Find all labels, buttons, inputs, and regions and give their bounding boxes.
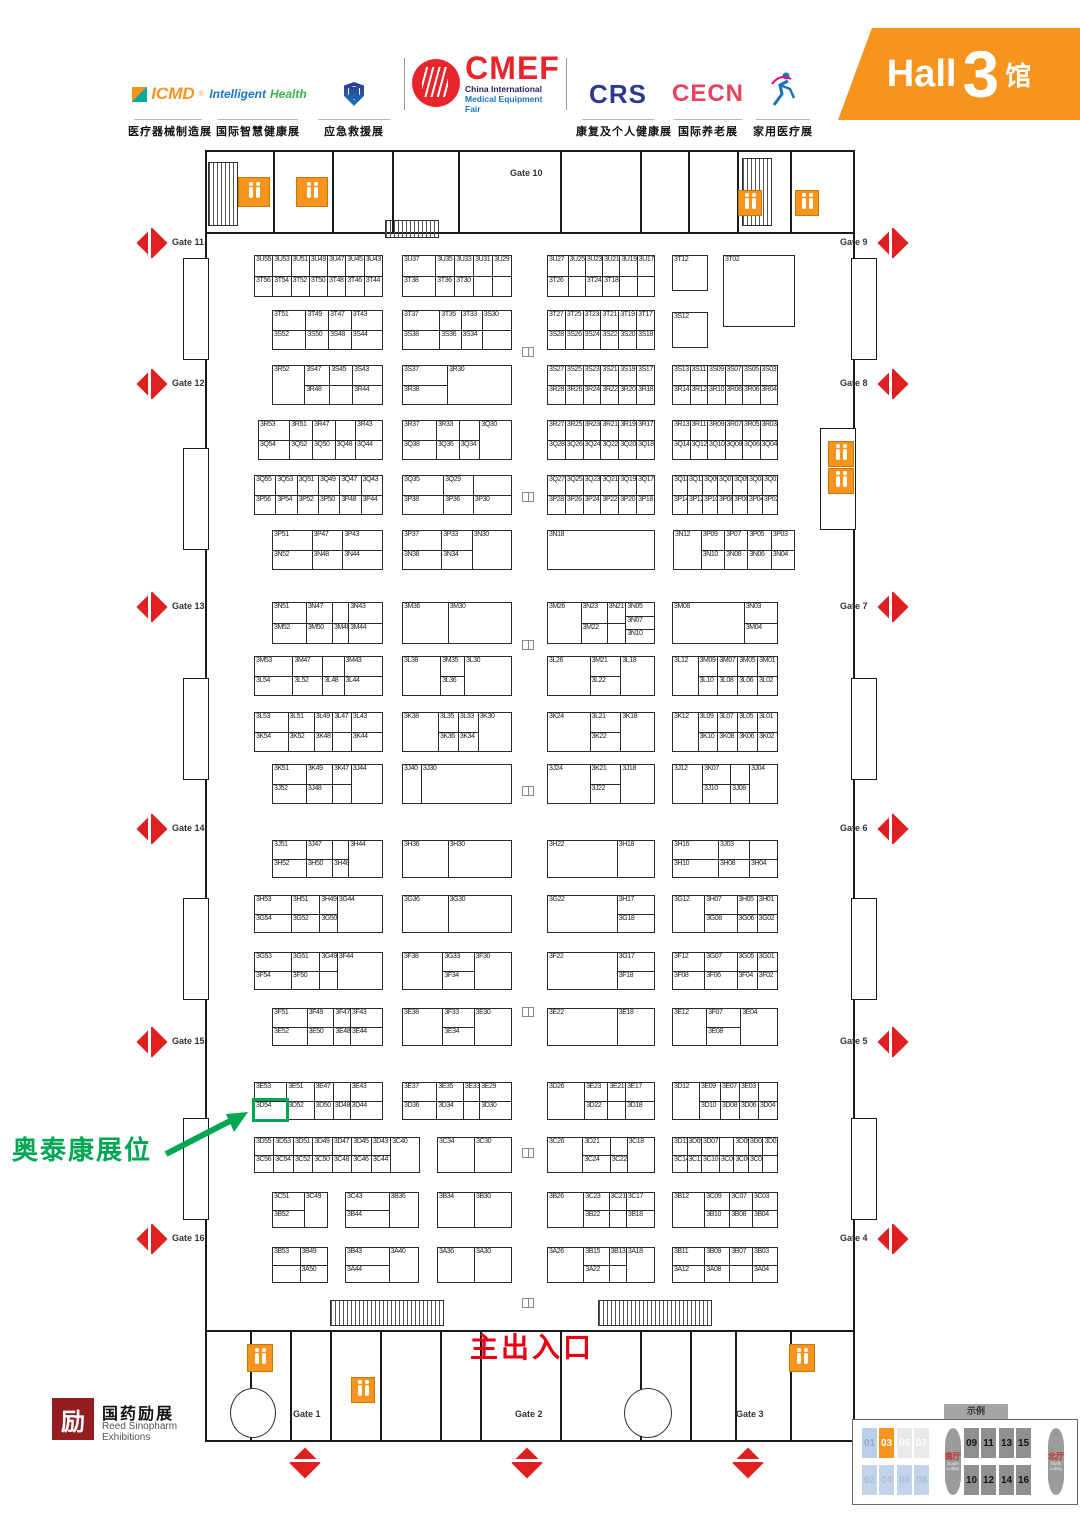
booth-column: 3T473S48	[328, 311, 351, 349]
booth-column: 3Q553P56	[255, 476, 275, 514]
booth-3N12: 3N12	[674, 531, 701, 569]
legend: 01030507020406080911131510121416南厅South …	[852, 1419, 1078, 1505]
booth-3P24: 3P24	[584, 495, 601, 515]
booth-3E17: 3E17	[626, 1083, 654, 1101]
booth-3C07: 3C07	[730, 1193, 752, 1210]
legend-hall-12: 12	[981, 1465, 996, 1495]
diamond-shape	[136, 227, 167, 258]
booth-column: 3M48	[332, 603, 348, 643]
booth-3G51: 3G51	[292, 953, 320, 971]
booth-column: 3L48	[322, 657, 343, 695]
booth-block: 3N123P093N103P073N083P053N063P033N04	[673, 530, 795, 570]
booth-3L08: 3L08	[718, 676, 737, 696]
booth-3G36: 3G36	[403, 896, 448, 932]
booth-3U49: 3U49	[310, 256, 327, 276]
booth-3D04: 3D04	[759, 1101, 777, 1120]
booth-block: 3E533D543E513D523E473D503D483E433D44	[254, 1082, 383, 1120]
booth-3K51: 3K51	[273, 765, 306, 784]
booth-3D07: 3D07	[702, 1138, 719, 1155]
booth-empty	[608, 1101, 625, 1120]
booth-3L47: 3L47	[333, 713, 351, 732]
booth-3M08: 3M08	[673, 603, 744, 643]
booth-3E23: 3E23	[585, 1083, 607, 1101]
booth-column: 3E093D10	[699, 1083, 720, 1119]
booth-column: 3P373N38	[403, 531, 441, 569]
booth-column: 3U553T56	[255, 256, 272, 296]
booth-column: 3N21	[607, 603, 626, 643]
booth-3D22: 3D22	[585, 1101, 607, 1120]
booth-3F02: 3F02	[758, 971, 777, 990]
diamond-shape	[136, 1223, 167, 1254]
booth-3F06: 3F06	[705, 971, 736, 990]
booth-3M48: 3M48	[333, 623, 348, 644]
booth-3L53: 3L53	[255, 713, 288, 732]
booth-empty	[273, 1265, 300, 1283]
booth-3K10: 3K10	[699, 732, 718, 752]
booth-column: 3B493A50	[300, 1248, 328, 1282]
booth-block: 3G363G30	[402, 895, 512, 933]
booth-column: 3R333Q36	[436, 421, 459, 459]
booth-empty	[333, 841, 348, 859]
booth-3Q05: 3Q05	[733, 476, 747, 495]
booth-3F12: 3F12	[673, 953, 704, 971]
booth-column: 3P073N08	[724, 531, 747, 569]
booth-3N08: 3N08	[725, 550, 747, 570]
booth-column: 3U493T50	[309, 256, 327, 296]
booth-column: 3J40	[403, 765, 421, 803]
booth-3E53: 3E53	[255, 1083, 286, 1101]
booth-3P30: 3P30	[474, 495, 511, 515]
booth-3S50: 3S50	[306, 330, 328, 350]
booth-3C14: 3C14	[673, 1155, 687, 1173]
booth-3R20: 3R20	[619, 385, 636, 405]
booth-column: 3M433L44	[344, 657, 382, 695]
wall	[560, 152, 562, 232]
booth-3L43: 3L43	[352, 713, 382, 732]
booth-annotation-label: 奥泰康展位	[12, 1130, 152, 1167]
booth-column: 3C21	[609, 1193, 626, 1227]
booth-block: 3J513H523J473H503H483H44	[272, 840, 383, 878]
gate-label: Gate 2	[515, 1409, 543, 1419]
booth-3C30: 3C30	[475, 1138, 511, 1172]
booth-empty	[608, 623, 626, 644]
booth-3Q34: 3Q34	[460, 440, 480, 460]
booth-block: 3S373R383R30	[402, 365, 512, 405]
booth-3B26: 3B26	[548, 1193, 583, 1227]
booth-column: 3E30	[474, 1009, 511, 1045]
booth-column: 3G30	[448, 896, 511, 932]
booth-column: 3G533F54	[255, 953, 291, 989]
booth-3U25: 3U25	[569, 256, 585, 276]
booth-3B22: 3B22	[584, 1210, 608, 1228]
legend-hall-14: 14	[999, 1465, 1014, 1495]
booth-3P37: 3P37	[403, 531, 441, 550]
booth-block: 3C263D213C243C223C18	[547, 1137, 655, 1173]
booth-3A36: 3A36	[438, 1248, 474, 1282]
booth-3J47: 3J47	[307, 841, 332, 859]
booth-column: 3L433K44	[351, 713, 382, 751]
booth-3C17: 3C17	[627, 1193, 654, 1210]
booth-block: 3H163H103J033H083H04	[672, 840, 778, 878]
booth-3Q55: 3Q55	[255, 476, 275, 495]
booth-column: 3T253S26	[565, 311, 583, 349]
booth-3D50: 3D50	[315, 1101, 333, 1120]
booth-column: 3B033A04	[752, 1248, 777, 1282]
diamond-shape	[877, 813, 908, 844]
legend-hall-09: 09	[964, 1428, 979, 1458]
booth-column: 3P333N34	[441, 531, 471, 569]
diamond-slit	[889, 369, 892, 399]
booth-column: 3G333F34	[442, 953, 473, 989]
booth-column: 3H073G08	[704, 896, 736, 932]
booth-column: 3N433M44	[348, 603, 382, 643]
booth-column: 3D033C02	[748, 1138, 763, 1172]
booth-3C51: 3C51	[273, 1193, 304, 1210]
booth-3D11: 3D11	[673, 1138, 687, 1155]
booth-3S23: 3S23	[584, 366, 601, 385]
booth-3C23: 3C23	[584, 1193, 608, 1210]
booth-3C43: 3C43	[346, 1193, 389, 1210]
booth-3J22: 3J22	[591, 784, 621, 804]
booth-3F43: 3F43	[351, 1009, 382, 1027]
booth-3T02: 3T02	[724, 256, 794, 326]
booth-3Q27: 3Q27	[548, 476, 565, 495]
booth-3A22: 3A22	[584, 1265, 608, 1283]
booth-3H01: 3H01	[758, 896, 777, 914]
booth-column: 3R433Q44	[355, 421, 382, 459]
booth-3K36: 3K36	[439, 732, 458, 752]
legend-hall-10: 10	[964, 1465, 979, 1495]
booth-3U21: 3U21	[603, 256, 619, 276]
booth-3S34: 3S34	[462, 330, 482, 350]
booth-column: 3T193S20	[618, 311, 636, 349]
booth-block: 3A263B153A223B133A18	[547, 1247, 655, 1283]
booth-3Q53: 3Q53	[276, 476, 296, 495]
booth-column: 3K47	[332, 765, 351, 803]
booth-column: 3D453C46	[351, 1138, 370, 1172]
pillar-marker-icon	[522, 1298, 534, 1308]
booth-column: 3Q273P28	[548, 476, 565, 514]
booth-column: 3S173R18	[636, 366, 654, 404]
booth-3Q09: 3Q09	[703, 476, 717, 495]
booth-block: 3P513N523P473N483P433N44	[272, 530, 383, 570]
booth-3Q49: 3Q49	[319, 476, 339, 495]
booth-3E08: 3E08	[707, 1027, 740, 1046]
legend-hall-07: 07	[914, 1428, 929, 1458]
booth-column: 3E033D06	[739, 1083, 758, 1119]
booth-3R27: 3R27	[548, 421, 565, 440]
pillar-marker-icon	[522, 1007, 534, 1017]
booth-block: 3M263N233M223N213N053N073N10	[547, 602, 655, 644]
booth-empty	[750, 841, 777, 859]
booth-3B18: 3B18	[627, 1210, 654, 1228]
booth-column: 3Q513P52	[297, 476, 318, 514]
gate-label: Gate 13	[172, 601, 205, 611]
booth-3C10: 3C10	[702, 1155, 719, 1173]
booth-3T35: 3T35	[440, 311, 460, 330]
legend-hall-05: 05	[897, 1428, 912, 1458]
restroom-icon	[795, 190, 819, 216]
booth-3P56: 3P56	[255, 495, 275, 515]
booth-3S19: 3S19	[619, 366, 636, 385]
booth-3D51: 3D51	[294, 1138, 312, 1155]
booth-3S07: 3S07	[726, 366, 743, 385]
booth-3P54: 3P54	[276, 495, 296, 515]
gate-diamond-icon	[878, 1027, 908, 1057]
booth-column: 3F22	[548, 953, 617, 989]
booth-3J10: 3J10	[703, 784, 730, 804]
booth-3S37: 3S37	[403, 366, 447, 385]
booth-3T48: 3T48	[328, 276, 345, 297]
booth-3E07: 3E07	[721, 1083, 739, 1101]
booth-3C24: 3C24	[583, 1155, 609, 1173]
booth-3H05: 3H05	[738, 896, 757, 914]
booth-column: 3D513C52	[293, 1138, 312, 1172]
booth-3R23: 3R23	[584, 421, 601, 440]
legend-hall-11: 11	[981, 1428, 996, 1458]
booth-3G18: 3G18	[618, 914, 654, 933]
booth-3T36: 3T36	[436, 276, 454, 297]
legend-hall-06: 06	[897, 1465, 912, 1495]
booth-3R19: 3R19	[619, 421, 636, 440]
booth-block: 3F513E523F493E503F473E483F433E44	[272, 1008, 383, 1046]
booth-3U19: 3U19	[620, 256, 636, 276]
booth-column: 3E22	[548, 1009, 617, 1045]
booth-3H10: 3H10	[673, 859, 718, 878]
booth-3D54: 3D54	[255, 1101, 286, 1120]
booth-column: 3D493C50	[312, 1138, 331, 1172]
stairs-icon	[330, 1300, 444, 1326]
booth-3T19: 3T19	[619, 311, 636, 330]
booth-3T50: 3T50	[310, 276, 327, 297]
booth-3F30: 3F30	[475, 953, 511, 989]
booth-3R26: 3R26	[566, 385, 583, 405]
booth-3J40: 3J40	[403, 765, 421, 803]
booth-column: 3F493E50	[307, 1009, 334, 1045]
person-glyph	[843, 449, 847, 460]
booth-column: 3F30	[474, 953, 511, 989]
booth-column: 3Q113P12	[687, 476, 702, 514]
booth-3D47: 3D47	[333, 1138, 351, 1155]
booth-3G06: 3G06	[738, 914, 757, 933]
booth-column: 3J473H50	[306, 841, 332, 877]
booth-3G01: 3G01	[758, 953, 777, 971]
gate-label: Gate 11	[172, 237, 204, 247]
booth-block: 3E373D363E353D343E333E293D30	[402, 1082, 512, 1120]
booth-3D44: 3D44	[351, 1101, 382, 1120]
booth-column: 3U25	[568, 256, 585, 296]
diamond-shape	[877, 1026, 908, 1057]
booth-3Q29: 3Q29	[444, 476, 473, 495]
booth-3A04: 3A04	[753, 1265, 777, 1283]
booth-empty	[464, 1101, 479, 1120]
booth-column: 3J24	[548, 765, 590, 803]
vestibule	[851, 678, 877, 780]
booth-3L54: 3L54	[255, 676, 292, 696]
booth-column: 3P093N10	[701, 531, 724, 569]
booth-3D21: 3D21	[583, 1138, 609, 1155]
booth-column: 3E21	[607, 1083, 625, 1119]
booth-column: 3Q293P36	[443, 476, 473, 514]
booth-column: 3N18	[548, 531, 654, 569]
booth-column: 3E533D54	[255, 1083, 286, 1119]
booth-3D03: 3D03	[749, 1138, 763, 1155]
booth-3R09: 3R09	[708, 421, 725, 440]
booth-block: 3Q353P383Q293P363P30	[402, 475, 512, 515]
booth-block: 3A363A30	[437, 1247, 512, 1283]
booth-column: 3F44	[337, 953, 382, 989]
booth-3T51: 3T51	[273, 311, 305, 330]
booth-3P44: 3P44	[362, 495, 382, 515]
booth-3G49: 3G49	[320, 953, 337, 971]
booth-3A50: 3A50	[301, 1265, 328, 1283]
booth-3B07: 3B07	[730, 1248, 752, 1265]
booth-column: 3S30	[482, 311, 511, 349]
booth-3E38: 3E38	[403, 1009, 442, 1045]
gate-label: Gate 10	[510, 168, 543, 178]
booth-block: 3P373N383P333N343N30	[402, 530, 512, 570]
booth-column: 3F473E48	[333, 1009, 350, 1045]
booth-column: 3G12	[673, 896, 704, 932]
booth-column: 3P433N44	[342, 531, 382, 569]
wall	[290, 1330, 292, 1440]
booth-column: 3C49	[304, 1193, 327, 1227]
booth-3Q08: 3Q08	[726, 440, 743, 460]
booth-column: 3H04	[749, 841, 777, 877]
floor-plan: 3U553T563U533T543U513T523U493T503U473T48…	[0, 0, 1080, 1529]
booth-column: 3S473R48	[304, 366, 329, 404]
booth-3E29: 3E29	[480, 1083, 511, 1101]
booth-3T49: 3T49	[306, 311, 328, 330]
booth-3P38: 3P38	[403, 495, 443, 515]
booth-3G22: 3G22	[548, 896, 617, 932]
booth-3M01: 3M01	[758, 657, 777, 676]
booth-3A40: 3A40	[390, 1248, 418, 1282]
booth-3T47: 3T47	[329, 311, 351, 330]
booth-3D01: 3D01	[763, 1138, 777, 1155]
booth-column: 3S373R38	[403, 366, 447, 404]
booth-column: 3U353T36	[435, 256, 454, 296]
booth-column: 3Q34	[459, 421, 480, 459]
booth-3J18: 3J18	[621, 765, 654, 803]
booth-column: 3F513E52	[273, 1009, 307, 1045]
booth-3T21: 3T21	[601, 311, 618, 330]
booth-3B15: 3B15	[584, 1248, 608, 1265]
booth-column: 3R133Q14	[673, 421, 690, 459]
restroom-icon	[247, 1344, 273, 1372]
booth-column: 3B26	[548, 1193, 583, 1227]
booth-block: 3S273R283S253R263S233R243S213R223S193R20…	[547, 365, 655, 405]
booth-3Q03: 3Q03	[748, 476, 762, 495]
booth-3G52: 3G52	[292, 914, 320, 933]
booth-block: 3H363H30	[402, 840, 512, 878]
booth-empty	[333, 603, 348, 623]
booth-3M43: 3M43	[345, 657, 382, 676]
booth-3T12: 3T12	[673, 256, 707, 290]
booth-3C09: 3C09	[705, 1193, 729, 1210]
booth-3C46: 3C46	[352, 1155, 370, 1173]
person-glyph	[752, 198, 756, 209]
booth-3R48: 3R48	[305, 385, 329, 405]
booth-3T38: 3T38	[403, 276, 435, 297]
gate-diamond-icon	[137, 592, 167, 622]
booth-3P50: 3P50	[319, 495, 339, 515]
booth-3S12: 3S12	[673, 313, 707, 347]
booth-3U47: 3U47	[328, 256, 345, 276]
booth-block: 3D113C143D093C123D073C103C083D053C063D03…	[672, 1137, 778, 1173]
booth-3S03: 3S03	[761, 366, 778, 385]
booth-3E52: 3E52	[273, 1027, 307, 1046]
booth-block: 3R533Q543R513Q523R473Q503Q483R433Q44	[258, 420, 383, 460]
diamond-slit	[889, 592, 892, 622]
booth-3D55: 3D55	[255, 1138, 273, 1155]
booth-3P22: 3P22	[601, 495, 618, 515]
booth-block: 3R373Q383R333Q363Q343Q30	[402, 420, 512, 460]
booth-3R43: 3R43	[356, 421, 382, 440]
booth-column: 3T513S52	[273, 311, 305, 349]
booth-3J30: 3J30	[422, 765, 511, 803]
booth-column: 3H493G50	[319, 896, 337, 932]
booth-3G02: 3G02	[758, 914, 777, 933]
booth-3S44: 3S44	[352, 330, 382, 350]
booth-3N51: 3N51	[273, 603, 306, 623]
person-glyph	[745, 198, 749, 209]
booth-3S38: 3S38	[403, 330, 439, 350]
diamond-shape	[136, 368, 167, 399]
booth-3T26: 3T26	[548, 276, 568, 297]
pillar-marker-icon	[522, 1148, 534, 1158]
booth-3L26: 3L26	[548, 657, 590, 695]
booth-3K12: 3K12	[673, 713, 698, 751]
booth-column: 3L513K52	[288, 713, 314, 751]
booth-column: 3J18	[620, 765, 654, 803]
booth-3P14: 3P14	[673, 495, 687, 515]
booth-3H08: 3H08	[719, 859, 749, 878]
booth-3Q38: 3Q38	[403, 440, 436, 460]
diamond-shape	[136, 1026, 167, 1057]
booth-column: 3E33	[463, 1083, 479, 1119]
booth-3N34: 3N34	[442, 550, 471, 570]
booth-column: 3E38	[403, 1009, 442, 1045]
booth-block: 3B433A443A40	[345, 1247, 419, 1283]
booth-3R05: 3R05	[743, 421, 760, 440]
booth-block: 3D123E093D103E073D083E033D063D04	[672, 1082, 778, 1120]
booth-3C48: 3C48	[333, 1155, 351, 1173]
wall	[688, 152, 690, 232]
booth-3E37: 3E37	[403, 1083, 436, 1101]
booth-3U53: 3U53	[273, 256, 290, 276]
vestibule	[183, 258, 209, 360]
booth-3Q50: 3Q50	[313, 440, 335, 460]
booth-3Q01: 3Q01	[763, 476, 777, 495]
booth-3F44: 3F44	[338, 953, 382, 989]
booth-column: 3U433T44	[364, 256, 382, 296]
booth-3H04: 3H04	[750, 859, 777, 878]
booth-column: 3T12	[673, 256, 707, 290]
booth-3E47: 3E47	[315, 1083, 333, 1101]
booth-column: 3H48	[332, 841, 348, 877]
booth-empty	[333, 784, 351, 804]
booth-3C21: 3C21	[610, 1193, 626, 1210]
booth-block: 3L263M213L223L18	[547, 656, 655, 696]
legend-south-lobby: 南厅South Lobby	[945, 1428, 961, 1495]
booth-column: 3E233D22	[584, 1083, 607, 1119]
booth-3R51: 3R51	[290, 421, 312, 440]
booth-column: 3E12	[673, 1009, 706, 1045]
wall	[205, 232, 855, 234]
booth-3G08: 3G08	[705, 914, 736, 933]
booth-3K38: 3K38	[403, 713, 438, 751]
